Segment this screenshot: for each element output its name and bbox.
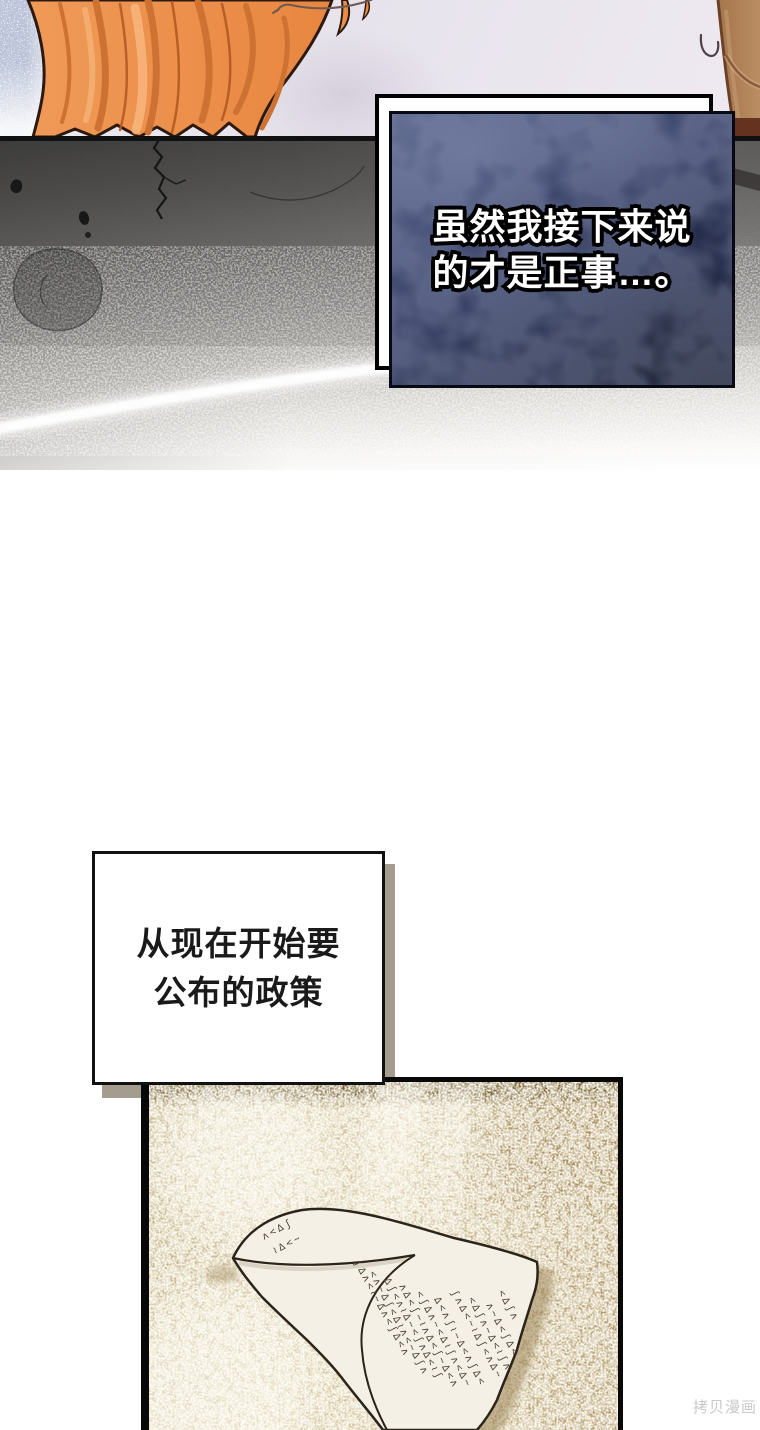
scene-panel-bottom: ʌ<∆ʃ ≀∆<~ ʃ∆ʌ<≀~∆ʌ<ʃ∆<ʌ <ʌ~∆ʃ<∆≀ʌ<~∆ʃʌ ∆… [141,1077,623,1430]
speech-box-light: 从现在开始要 公布的政策 [92,851,385,1085]
bottom-panel-texture: ʌ<∆ʃ ≀∆<~ ʃ∆ʌ<≀~∆ʌ<ʃ∆<ʌ <ʌ~∆ʃ<∆≀ʌ<~∆ʃʌ ∆… [149,1082,618,1430]
narration-box-dark: 虽然我接下来说虽然我接下来说 的才是正事…。的才是正事…。 [389,111,735,388]
narration-text: 虽然我接下来说虽然我接下来说 的才是正事…。的才是正事…。 [392,114,732,385]
policy-text-line1: 从现在开始要 [137,919,341,969]
narration-text-line2: 的才是正事…。的才是正事…。 [432,250,691,295]
comic-page: 虽然我接下来说虽然我接下来说 的才是正事…。的才是正事…。 [0,0,760,1430]
character-hair [0,0,390,138]
narration-text-line1: 虽然我接下来说虽然我接下来说 [432,204,691,249]
sweat-drop-mark [701,35,718,56]
watermark: 拷贝漫画 [693,1396,757,1417]
policy-text-line2: 公布的政策 [154,968,324,1018]
